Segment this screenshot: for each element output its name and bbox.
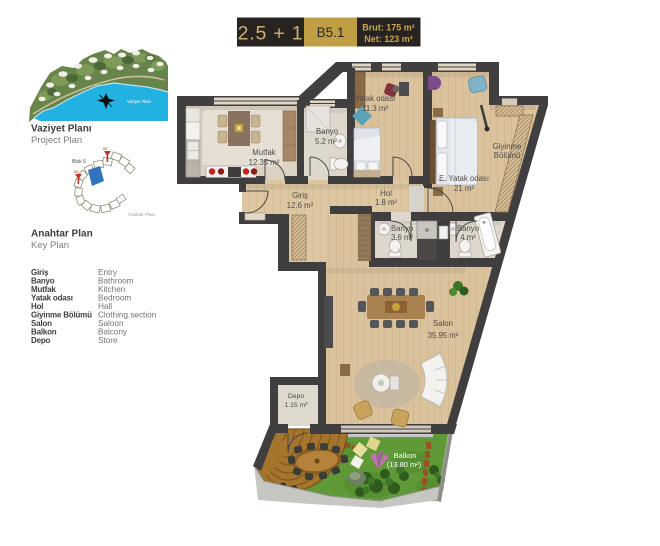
svg-text:3.6 m²: 3.6 m² xyxy=(391,233,413,242)
svg-text:35.95 m²: 35.95 m² xyxy=(428,331,459,340)
svg-text:Bölümü: Bölümü xyxy=(494,151,520,160)
svg-text:Balkon: Balkon xyxy=(394,451,417,460)
svg-text:Depo: Depo xyxy=(288,393,304,400)
svg-text:21 m²: 21 m² xyxy=(454,184,474,193)
svg-text:B5.1: B5.1 xyxy=(317,25,345,40)
svg-text:Blok 6: Blok 6 xyxy=(72,159,86,165)
svg-text:Anahtar Plan: Anahtar Plan xyxy=(31,229,93,240)
svg-text:5.2 m²: 5.2 m² xyxy=(315,137,337,146)
svg-text:Banyo: Banyo xyxy=(316,127,339,136)
svg-text:Giyinme: Giyinme xyxy=(493,142,522,151)
svg-text:Giriş: Giriş xyxy=(292,191,308,200)
svg-text:B5: B5 xyxy=(103,147,107,151)
svg-text:Banyo: Banyo xyxy=(391,224,414,233)
svg-text:Vaziyet Planı: Vaziyet Planı xyxy=(31,124,92,135)
svg-text:Depo: Depo xyxy=(31,336,51,345)
svg-text:11.3 m²: 11.3 m² xyxy=(362,104,388,113)
svg-text:2.5 + 1: 2.5 + 1 xyxy=(238,23,304,45)
svg-text:12.6 m²: 12.6 m² xyxy=(287,201,314,210)
svg-text:Mutfak: Mutfak xyxy=(252,148,275,157)
svg-text:Project Plan: Project Plan xyxy=(31,135,82,146)
svg-text:Vaziyet Planı: Vaziyet Planı xyxy=(127,99,151,104)
svg-text:B5: B5 xyxy=(74,170,78,174)
svg-text:Salon: Salon xyxy=(433,319,453,328)
svg-text:Hol: Hol xyxy=(380,189,392,198)
svg-text:1.15 m²: 1.15 m² xyxy=(284,402,308,409)
svg-text:4 m²: 4 m² xyxy=(460,233,476,242)
svg-text:E. Yatak odası: E. Yatak odası xyxy=(439,174,489,183)
svg-text:Key Plan: Key Plan xyxy=(31,240,69,251)
svg-text:Store: Store xyxy=(98,336,118,345)
svg-text:Brut: 175 m²: Brut: 175 m² xyxy=(362,23,415,33)
svg-text:Yatak odası: Yatak odası xyxy=(355,94,396,103)
svg-text:(13.80 m²): (13.80 m²) xyxy=(387,460,422,469)
svg-text:1.8 m²: 1.8 m² xyxy=(375,198,397,207)
svg-text:12.35 m²: 12.35 m² xyxy=(249,158,280,167)
svg-text:Banyo: Banyo xyxy=(457,224,480,233)
svg-text:Anahtar Planı: Anahtar Planı xyxy=(128,212,155,217)
svg-text:Net: 123 m²: Net: 123 m² xyxy=(364,34,413,44)
